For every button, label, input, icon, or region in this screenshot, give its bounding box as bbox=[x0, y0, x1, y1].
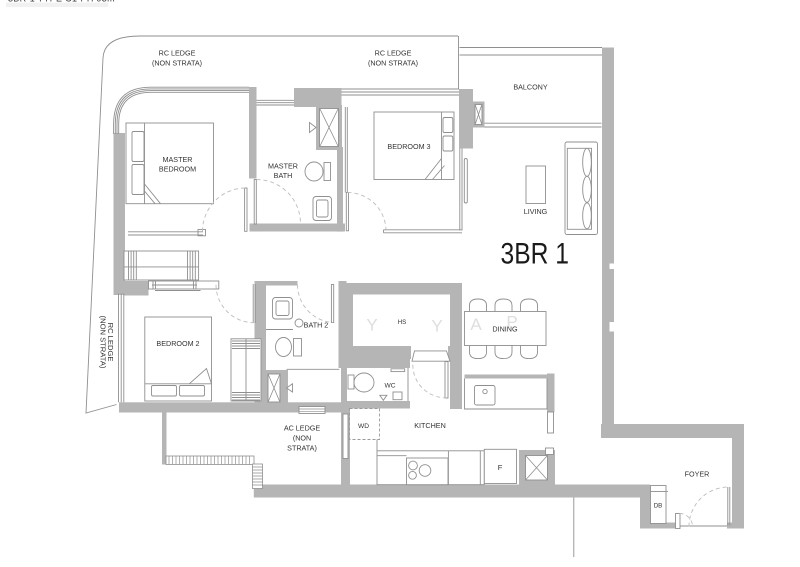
svg-text:BATH: BATH bbox=[274, 171, 293, 180]
svg-text:A: A bbox=[470, 315, 482, 334]
svg-text:MASTER: MASTER bbox=[268, 162, 298, 171]
svg-text:(NON STRATA): (NON STRATA) bbox=[99, 316, 108, 369]
svg-text:LIVING: LIVING bbox=[524, 207, 548, 216]
svg-text:BEDROOM 2: BEDROOM 2 bbox=[156, 339, 199, 348]
svg-text:HS: HS bbox=[398, 319, 407, 326]
svg-text:Y: Y bbox=[431, 317, 442, 336]
svg-text:(NON: (NON bbox=[293, 434, 311, 443]
svg-text:AC LEDGE: AC LEDGE bbox=[284, 424, 321, 433]
svg-text:WC: WC bbox=[385, 383, 396, 390]
svg-text:DB: DB bbox=[654, 503, 663, 510]
svg-text:RC LEDGE: RC LEDGE bbox=[159, 49, 196, 58]
svg-text:FOYER: FOYER bbox=[685, 470, 710, 479]
svg-text:Y: Y bbox=[366, 316, 377, 335]
svg-text:(NON STRATA): (NON STRATA) bbox=[152, 59, 202, 68]
svg-text:F: F bbox=[498, 463, 503, 472]
svg-text:BEDROOM: BEDROOM bbox=[159, 165, 196, 174]
svg-text:(NON STRATA): (NON STRATA) bbox=[368, 59, 418, 68]
svg-text:STRATA): STRATA) bbox=[287, 444, 317, 453]
svg-text:MASTER: MASTER bbox=[163, 155, 193, 164]
svg-text:WD: WD bbox=[358, 423, 369, 430]
svg-text:KITCHEN: KITCHEN bbox=[414, 421, 446, 430]
svg-text:RC LEDGE: RC LEDGE bbox=[375, 49, 412, 58]
svg-text:DINING: DINING bbox=[492, 325, 518, 334]
svg-text:BATH 2: BATH 2 bbox=[304, 321, 329, 330]
svg-text:BALCONY: BALCONY bbox=[513, 83, 548, 92]
svg-text:3BR-1 TYPE C1-PH 93m: 3BR-1 TYPE C1-PH 93m bbox=[8, 0, 115, 4]
svg-text:3BR 1: 3BR 1 bbox=[501, 238, 570, 271]
svg-text:BEDROOM 3: BEDROOM 3 bbox=[387, 142, 430, 151]
